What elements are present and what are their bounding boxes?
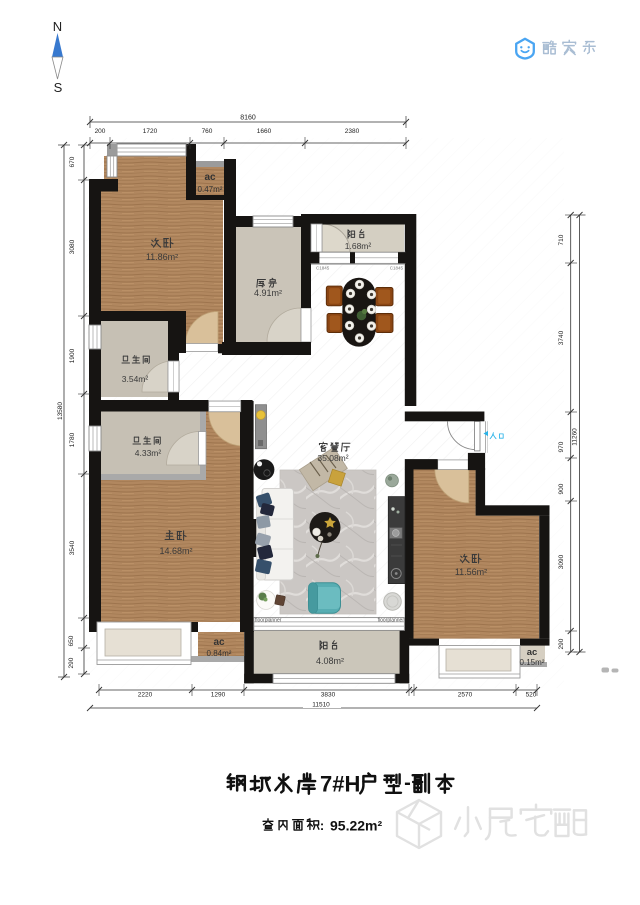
svg-text:0.47m²: 0.47m²: [198, 185, 223, 194]
svg-text:2380: 2380: [345, 128, 360, 135]
svg-text:11260: 11260: [572, 428, 579, 446]
svg-text:710: 710: [558, 234, 565, 245]
svg-text:1660: 1660: [257, 128, 272, 135]
svg-text:floorplanner: floorplanner: [255, 618, 282, 624]
svg-text:11510: 11510: [312, 702, 330, 709]
svg-text:11.56m²: 11.56m²: [455, 567, 487, 577]
svg-text:200: 200: [95, 128, 106, 135]
svg-text:2220: 2220: [138, 692, 153, 699]
svg-text:C1845: C1845: [390, 266, 404, 271]
svg-text:3540: 3540: [69, 540, 76, 555]
svg-text:3.54m²: 3.54m²: [122, 374, 149, 384]
svg-text:-: -: [404, 772, 411, 794]
svg-text:0.84m²: 0.84m²: [207, 649, 232, 658]
svg-text:4.33m²: 4.33m²: [135, 448, 162, 458]
svg-text:N: N: [53, 19, 62, 34]
svg-text::: :: [320, 818, 324, 833]
svg-text:ac: ac: [527, 647, 538, 658]
svg-text:3080: 3080: [69, 239, 76, 254]
svg-text:290: 290: [558, 638, 565, 649]
svg-text:1780: 1780: [69, 432, 76, 447]
svg-text:970: 970: [558, 441, 565, 452]
svg-text:35.08m²: 35.08m²: [317, 453, 348, 463]
svg-text:1290: 1290: [211, 692, 226, 699]
svg-text:C1845: C1845: [316, 266, 330, 271]
svg-text:290: 290: [68, 657, 75, 668]
svg-text:3830: 3830: [321, 692, 336, 699]
svg-text:760: 760: [202, 128, 213, 135]
svg-text:S: S: [54, 80, 63, 95]
svg-text:ac: ac: [213, 637, 225, 648]
svg-text:650: 650: [68, 635, 75, 646]
svg-text:7#H: 7#H: [320, 772, 360, 797]
svg-text:95.22m²: 95.22m²: [330, 818, 382, 834]
svg-text:2570: 2570: [458, 692, 473, 699]
svg-text:1.68m²: 1.68m²: [345, 241, 372, 251]
svg-text:8160: 8160: [240, 115, 256, 122]
svg-text:ac: ac: [204, 172, 216, 183]
svg-text:1900: 1900: [69, 348, 76, 363]
svg-text:900: 900: [558, 483, 565, 494]
svg-text:floorplanner: floorplanner: [378, 618, 405, 624]
svg-text:13580: 13580: [57, 402, 64, 420]
svg-text:14.68m²: 14.68m²: [159, 546, 192, 556]
svg-text:520: 520: [526, 692, 537, 699]
svg-text:3740: 3740: [558, 330, 565, 345]
svg-text:4.08m²: 4.08m²: [316, 656, 344, 666]
svg-text:3090: 3090: [558, 554, 565, 569]
svg-text:1720: 1720: [143, 128, 158, 135]
svg-text:670: 670: [69, 156, 76, 167]
svg-text:4.91m²: 4.91m²: [254, 288, 282, 298]
svg-text:0.15m²: 0.15m²: [520, 658, 545, 667]
svg-text:11.86m²: 11.86m²: [146, 252, 178, 262]
